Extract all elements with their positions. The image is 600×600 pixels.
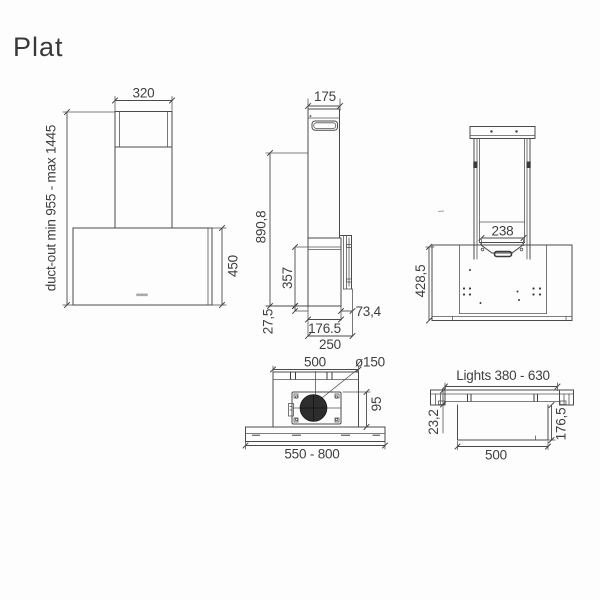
section-box-width-label: 500 [485,448,507,463]
front-chimney-outline [115,112,172,229]
drawing-shape [480,302,482,304]
drawing-shape [532,287,534,289]
side-body-height-label: 357 [280,267,295,289]
brand-logo-mark [136,294,148,297]
bottom-housing-width-label: 500 [304,355,326,370]
section-panel-thickness-label: 23,2 [426,409,441,434]
front-body-height-label: 450 [226,255,241,277]
drawing-shape [527,162,531,169]
drawing-shape [518,299,520,301]
stray-mark [438,211,444,212]
rear-view: 238 428,5 [413,127,572,324]
drawing-shape [560,401,566,405]
section-lights-range-label: Lights 380 - 630 [456,368,550,383]
side-body-depth-label: 176.5 [308,321,341,336]
bottom-duct-diameter-label: ø150 [355,355,385,370]
front-body-outline [73,228,212,305]
hood-dimension-drawing: Plat 320 duct-out min 955 - max 1445 450… [0,0,600,600]
drawing-shape [539,287,541,289]
drawing-shape [469,293,471,295]
front-chimney-width-label: 320 [133,86,155,101]
drawing-shape [463,293,465,295]
screw-dot [490,130,492,132]
screw-dot [335,418,337,420]
page-title: Plat [13,32,64,62]
bottom-view: 500 ø150 95 [243,355,388,462]
technical-drawing-page: Plat 320 duct-out min 955 - max 1445 450… [0,0,600,600]
bottom-housing-depth-label: 95 [369,397,384,412]
side-chimney-slot [312,121,338,130]
screw-dot [295,418,297,420]
section-box-depth-label: 176,5 [554,408,569,441]
drawing-shape [310,115,312,117]
drawing-shape [469,269,471,271]
screw-dot [481,248,484,251]
screw-dot [335,396,337,398]
front-duct-out-range-label: duct-out min 955 - max 1445 [44,125,59,291]
side-overall-height-label: 890,8 [254,211,269,244]
side-wall-gap-label: 73,4 [356,304,382,319]
drawing-shape [473,162,477,169]
rear-bracket-slot [495,252,512,257]
screw-dot [295,396,297,398]
side-view: 175 890,8 357 27,5 [254,89,382,352]
drawing-shape [469,287,471,289]
rear-top-bar [470,127,535,139]
front-view: 320 duct-out min 955 - max 1445 450 [44,86,241,308]
rear-bracket-width-label: 238 [492,224,514,239]
drawing-shape [314,123,336,129]
side-bottom-offset-label: 27,5 [261,309,276,334]
drawing-shape [517,291,519,293]
drawing-shape [532,293,534,295]
drawing-shape [463,287,465,289]
section-view: Lights 380 - 630 23,2 [426,368,574,463]
drawing-line [512,245,523,253]
rear-mounting-height-label: 428,5 [413,265,428,298]
screw-dot [520,248,523,251]
side-chimney-depth-label: 175 [314,89,336,104]
drawing-shape [539,293,541,295]
drawing-line [481,245,492,253]
bottom-width-range-label: 550 - 800 [284,447,339,462]
side-total-depth-label: 250 [319,337,341,352]
screw-dot [515,130,517,132]
